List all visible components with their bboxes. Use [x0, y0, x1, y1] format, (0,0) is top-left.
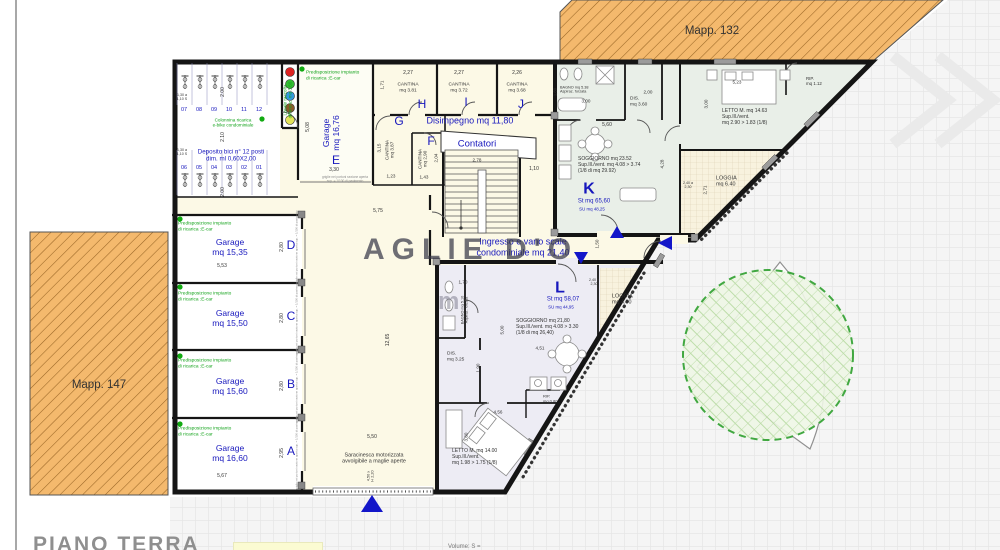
- page-title: PIANO TERRA: [33, 533, 200, 550]
- legend-swatch: [233, 542, 323, 550]
- tree-canopy: [683, 270, 853, 440]
- parcel-mapp-147: [30, 232, 168, 495]
- sheet-border-line: [15, 0, 17, 550]
- saracinesca-door: [313, 488, 433, 495]
- legend-note: Volume: S =: [448, 544, 481, 550]
- floor-plan-sheet: Mapp. 132Mapp. 1470708091011120605040302…: [0, 0, 1000, 550]
- watermark-text-2: m: [438, 288, 459, 316]
- floor-plan-drawing: [0, 0, 1000, 550]
- watermark-text: AGLIE D'O: [363, 233, 578, 267]
- staircase: [445, 150, 518, 233]
